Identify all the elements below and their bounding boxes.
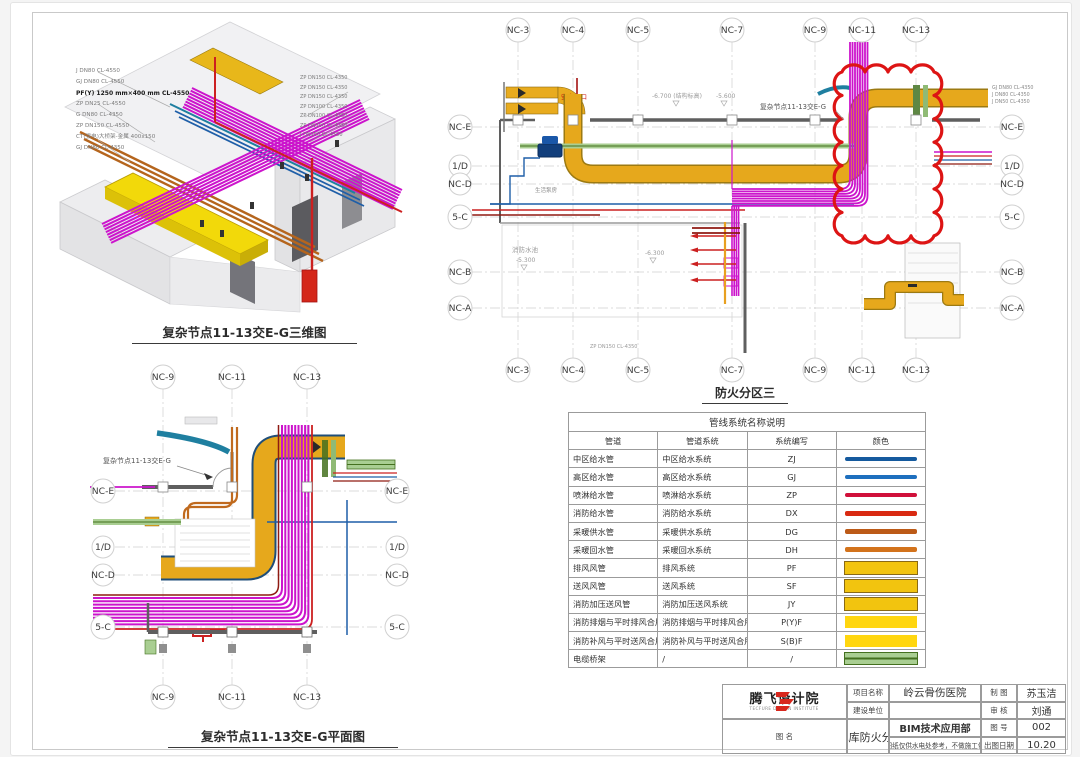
svg-text:5-C: 5-C (452, 212, 468, 223)
node-label: 复杂节点11-13交E-G (760, 102, 826, 111)
svg-text:1/D: 1/D (1004, 161, 1020, 172)
svg-text:NC-13: NC-13 (902, 365, 930, 376)
svg-text:NC-E: NC-E (449, 122, 472, 133)
legend-color-bar (845, 529, 917, 534)
reviewer-label: 审 核 (981, 702, 1017, 720)
pipe-label: J DN80 CL-4350 (991, 92, 1030, 98)
disclaimer-note: 本图纸仅供水电处参考，不做施工依据 (889, 737, 981, 755)
drawing-label: 图 名 (722, 719, 847, 754)
elev-56: -5.600 (716, 93, 736, 100)
svg-text:NC-7: NC-7 (721, 365, 744, 376)
svg-text:NC-A: NC-A (1001, 303, 1024, 314)
company-logo-icon (772, 690, 798, 714)
legend-header: 管道系统 (658, 432, 747, 450)
svg-text:5-C: 5-C (389, 622, 405, 633)
legend-row: 喷淋给水管喷淋给水系统ZP (569, 486, 926, 504)
number-label: 图 号 (981, 719, 1017, 737)
svg-text:NC-13: NC-13 (902, 25, 930, 36)
svg-text:NC-E: NC-E (386, 486, 409, 497)
client-label: 建设单位 (847, 702, 889, 720)
department: BIM技术应用部 (889, 719, 981, 737)
legend-color-bar (845, 511, 917, 516)
date-label: 出图日期 (981, 737, 1017, 755)
svg-text:NC-9: NC-9 (152, 372, 175, 383)
iso-pipe-labels-left: J DN80 CL-4550GJ DN80 CL-4550 PF(Y) 1250… (76, 66, 189, 154)
pump-room-label: 生活泵房 (535, 186, 558, 194)
label-stack (175, 519, 255, 567)
node-label: 复杂节点11-13交E-G (103, 456, 171, 465)
pipe-label: GJ DN80 CL-4350 (992, 85, 1033, 91)
issue-date: 10.20 (1017, 737, 1066, 755)
plan-detail-caption: 复杂节点11-13交E-G平面图 (168, 726, 398, 748)
svg-text:NC-11: NC-11 (218, 372, 246, 383)
plan-main-caption: 防火分区三 (702, 384, 788, 404)
svg-text:5-C: 5-C (95, 622, 111, 633)
title-block: 腾飞设计院 TECFURE DESIGN INSTITUTE 项目名称 岭云骨伤… (722, 684, 1066, 754)
project-name: 岭云骨伤医院 (889, 684, 981, 702)
svg-text:NC-B: NC-B (1001, 267, 1024, 278)
svg-text:5-C: 5-C (1004, 212, 1020, 223)
svg-text:NC-11: NC-11 (218, 692, 246, 703)
svg-text:NC-5: NC-5 (627, 25, 650, 36)
legend-color-bar (844, 561, 918, 575)
legend-row: 送风风管送风系统SF (569, 577, 926, 595)
plan-detail-svg: 复杂节点11-13交E-G NC-9 NC-11 NC-13 NC-9 NC-1… (85, 353, 415, 718)
svg-text:NC-3: NC-3 (507, 25, 530, 36)
legend-header: 管道 (569, 432, 658, 450)
legend-title: 管线系统名称说明 (569, 413, 926, 432)
svg-text:1/D: 1/D (452, 161, 468, 172)
svg-text:NC-D: NC-D (91, 570, 115, 581)
legend-color-bar (844, 579, 918, 593)
legend-color-bar (844, 652, 918, 665)
plan-main-svg: 安全出口 生活泵房 (440, 8, 1070, 408)
iso-view-svg (50, 12, 440, 342)
svg-text:NC-11: NC-11 (848, 365, 876, 376)
svg-text:NC-13: NC-13 (293, 372, 321, 383)
bottom-pipe-label: ZP DN150 CL-4350 (590, 344, 637, 350)
legend-color-bar (845, 493, 917, 498)
svg-text:NC-5: NC-5 (627, 365, 650, 376)
drawing-number: 002 (1017, 719, 1066, 737)
svg-text:NC-E: NC-E (92, 486, 115, 497)
pool-label: 消防水池 (512, 245, 539, 254)
legend-table: 管线系统名称说明 管道 管道系统 系统编写 颜色 中区给水管中区给水系统ZJ 高… (568, 412, 926, 668)
iso-view-caption: 复杂节点11-13交E-G三维图 (132, 322, 357, 344)
legend-row: 消防加压送风管消防加压送风系统JY (569, 595, 926, 613)
svg-text:NC-9: NC-9 (152, 692, 175, 703)
legend-color-bar (845, 635, 917, 647)
legend-row: 电缆桥架// (569, 650, 926, 668)
svg-text:NC-11: NC-11 (848, 25, 876, 36)
svg-text:NC-4: NC-4 (562, 25, 585, 36)
svg-text:1/D: 1/D (389, 542, 405, 553)
legend-color-bar (845, 616, 917, 628)
reviewer-name: 刘通 (1017, 702, 1066, 720)
project-label: 项目名称 (847, 684, 889, 702)
svg-text:NC-3: NC-3 (507, 365, 530, 376)
legend-row: 消防给水管消防给水系统DX (569, 504, 926, 522)
legend-header-row: 管道 管道系统 系统编写 颜色 (569, 432, 926, 450)
legend-color-bar (845, 457, 917, 462)
elev-53: -5.300 (516, 257, 536, 264)
legend-header: 系统编写 (747, 432, 836, 450)
legend-row: 采暖回水管采暖回水系统DH (569, 541, 926, 559)
draftsman-label: 制 图 (981, 684, 1017, 702)
legend-row: 采暖供水管采暖供水系统DG (569, 522, 926, 540)
svg-text:NC-B: NC-B (449, 267, 472, 278)
svg-text:NC-7: NC-7 (721, 25, 744, 36)
svg-text:NC-D: NC-D (385, 570, 409, 581)
elev-structure: -6.700 (结构标高) (652, 92, 702, 100)
legend-row: 消防排烟与平时排风合用风管消防排烟与平时排风合用系统P(Y)F (569, 613, 926, 631)
svg-text:1/D: 1/D (95, 542, 111, 553)
duct-teal (157, 433, 229, 452)
svg-text:NC-D: NC-D (448, 179, 472, 190)
svg-text:NC-9: NC-9 (804, 25, 827, 36)
legend-row: 中区给水管中区给水系统ZJ (569, 450, 926, 468)
legend-color-bar (845, 547, 917, 552)
svg-text:NC-9: NC-9 (804, 365, 827, 376)
svg-text:NC-13: NC-13 (293, 692, 321, 703)
legend-color-bar (845, 475, 917, 480)
svg-text:NC-A: NC-A (449, 303, 472, 314)
client-name (889, 702, 981, 720)
svg-text:NC-D: NC-D (1000, 179, 1024, 190)
svg-text:NC-4: NC-4 (562, 365, 585, 376)
legend-color-bar (844, 597, 918, 611)
screenshot-root: { "iso_view": { "caption": "复杂节点11-13交E-… (0, 0, 1080, 757)
elev-63: -6.300 (645, 250, 665, 257)
company-logo: 腾飞设计院 TECFURE DESIGN INSTITUTE (722, 684, 847, 719)
iso-pipe-labels-right: ZP DN150 CL-4350ZP DN150 CL-4350 ZP DN15… (300, 74, 347, 141)
draftsman-name: 苏玉洁 (1017, 684, 1066, 702)
legend-row: 消防补风与平时送风合用风管消防补风与平时送风合用系统S(B)F (569, 632, 926, 650)
legend-row: 排风风管排风系统PF (569, 559, 926, 577)
legend-header: 颜色 (836, 432, 925, 450)
svg-text:NC-E: NC-E (1001, 122, 1024, 133)
drawing-name: 5#地库防火分区三 (847, 719, 889, 754)
pump (538, 144, 562, 157)
legend-row: 高区给水管高区给水系统GJ (569, 468, 926, 486)
pipe-label: J DN50 CL-4350 (991, 99, 1030, 105)
